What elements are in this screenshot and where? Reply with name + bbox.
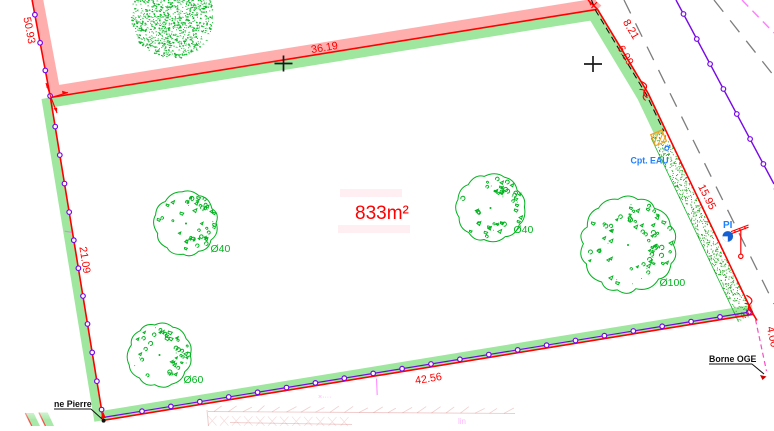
svg-text:Ø40: Ø40 (514, 224, 534, 236)
svg-text:PI: PI (723, 220, 733, 231)
svg-text:Borne OGE: Borne OGE (709, 354, 757, 364)
svg-text:Ø40: Ø40 (211, 243, 231, 255)
svg-text:Cpt. EAU: Cpt. EAU (631, 156, 669, 166)
svg-text:Ø100: Ø100 (660, 277, 686, 289)
svg-text:833m²: 833m² (355, 203, 409, 224)
svg-text:×····: ×···· (318, 394, 331, 401)
svg-text:ne Pierre: ne Pierre (54, 399, 92, 409)
svg-text:lin: lin (458, 417, 466, 426)
svg-text:Ø60: Ø60 (184, 374, 204, 386)
